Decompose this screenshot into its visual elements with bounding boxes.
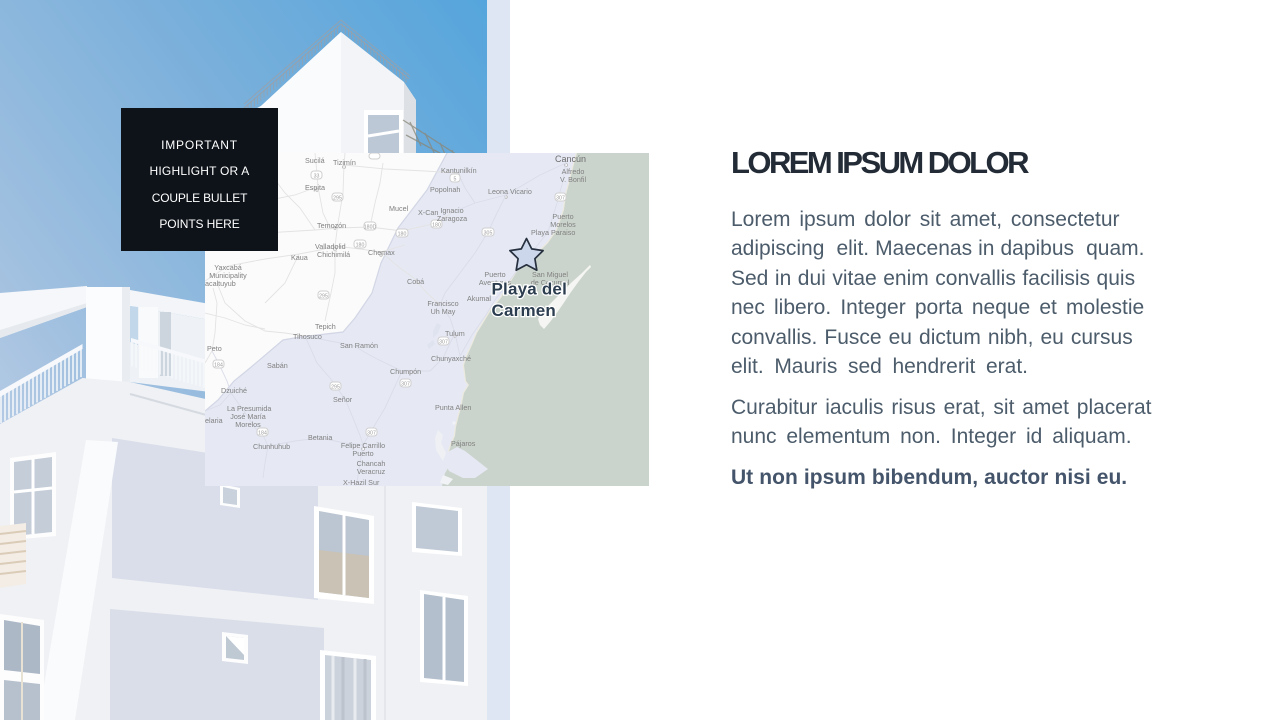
svg-text:Popolnah: Popolnah [430,185,460,194]
svg-text:Zaragoza: Zaragoza [437,214,467,223]
svg-text:Tepich: Tepich [315,322,336,331]
svg-text:33: 33 [314,174,320,180]
svg-text:307: 307 [367,431,376,437]
svg-text:305: 305 [484,231,493,237]
svg-text:Tizimín: Tizimín [333,158,356,167]
svg-text:295: 295 [331,385,340,391]
svg-text:acaltuyub: acaltuyub [205,279,236,288]
svg-text:X-Hazil Sur: X-Hazil Sur [343,478,380,486]
svg-text:Chemax: Chemax [368,248,395,257]
svg-text:Pájaros: Pájaros [451,439,476,448]
svg-text:Morelos: Morelos [235,420,261,429]
svg-text:Sucilá: Sucilá [305,156,325,165]
svg-text:295: 295 [319,294,328,300]
svg-text:180: 180 [432,223,441,229]
svg-text:Uh May: Uh May [431,307,456,316]
svg-text:307: 307 [556,196,565,202]
svg-text:5: 5 [454,177,457,183]
svg-text:Tihosuco: Tihosuco [293,332,322,341]
svg-text:Temozón: Temozón [317,221,346,230]
svg-text:Cobá: Cobá [407,277,424,286]
svg-text:Playa del: Playa del [492,280,568,299]
svg-text:180: 180 [356,243,365,249]
svg-text:Chunhuhub: Chunhuhub [253,442,290,451]
svg-text:Peto: Peto [207,344,222,353]
svg-text:Puerto: Puerto [352,449,373,458]
svg-text:Cancún: Cancún [555,154,586,164]
svg-text:Mucel: Mucel [389,204,409,213]
svg-text:307: 307 [439,340,448,346]
svg-text:V. Bonfil: V. Bonfil [560,175,587,184]
svg-text:Akumal: Akumal [467,294,491,303]
svg-text:Playa Paraiso: Playa Paraiso [531,228,575,237]
svg-text:Tulum: Tulum [445,329,465,338]
svg-text:Kantunilkín: Kantunilkín [441,166,477,175]
svg-text:307: 307 [401,382,410,388]
svg-text:Betania: Betania [308,433,332,442]
svg-text:Punta Allen: Punta Allen [435,403,471,412]
svg-text:184: 184 [214,363,223,369]
svg-text:Kaua: Kaua [291,253,308,262]
svg-text:Carmen: Carmen [492,301,557,320]
svg-text:Chunyaxché: Chunyaxché [431,354,471,363]
svg-text:Chichimilá: Chichimilá [317,250,350,259]
svg-text:X-Can: X-Can [418,208,438,217]
svg-text:180D: 180D [364,225,377,231]
svg-text:elaria: elaria [205,416,223,425]
svg-text:Dzuiché: Dzuiché [221,386,247,395]
svg-text:Sabán: Sabán [267,361,288,370]
svg-text:Señor: Señor [333,395,353,404]
svg-text:Chumpón: Chumpón [390,367,421,376]
svg-text:180: 180 [398,232,407,238]
svg-text:San Ramón: San Ramón [340,341,378,350]
svg-text:184: 184 [258,431,267,437]
svg-text:295: 295 [333,196,342,202]
svg-text:Veracruz: Veracruz [357,467,386,476]
svg-text:Leona Vicario: Leona Vicario [488,187,532,196]
svg-text:Espita: Espita [305,183,325,192]
